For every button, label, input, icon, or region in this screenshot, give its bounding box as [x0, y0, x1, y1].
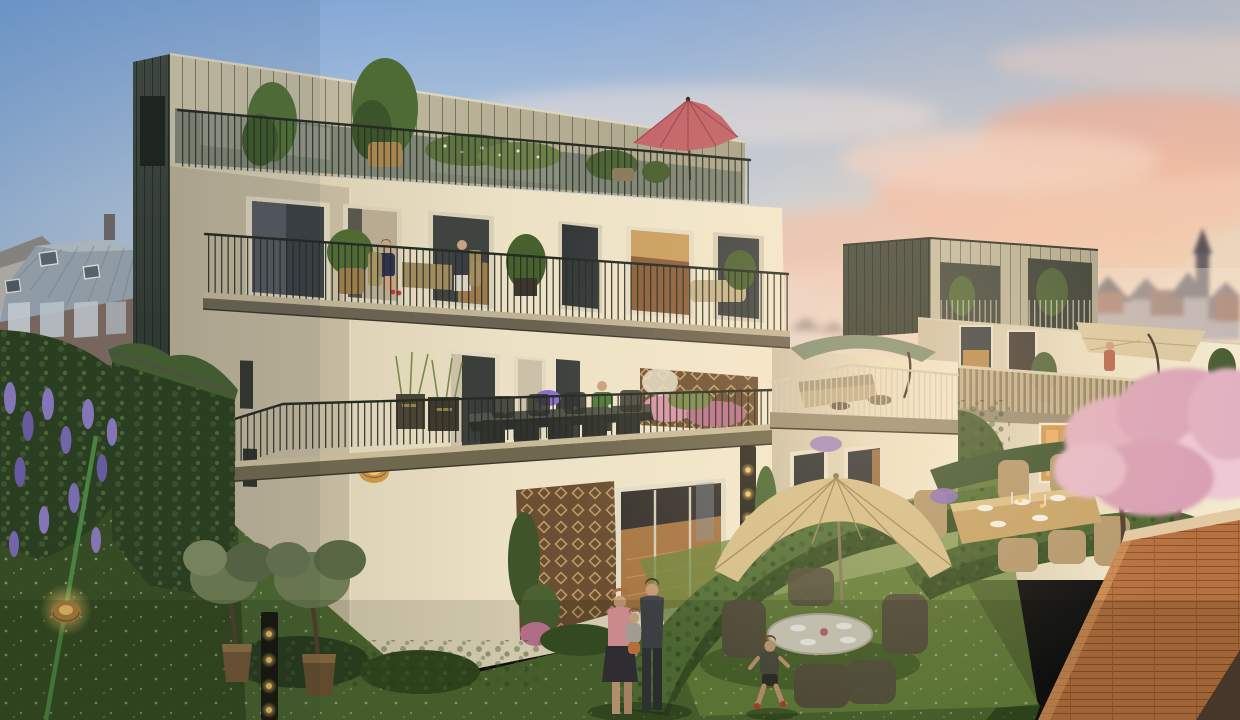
architectural-rendering	[0, 0, 1240, 720]
scene-canvas	[0, 0, 1240, 720]
atmosphere-overlays	[0, 0, 1240, 720]
